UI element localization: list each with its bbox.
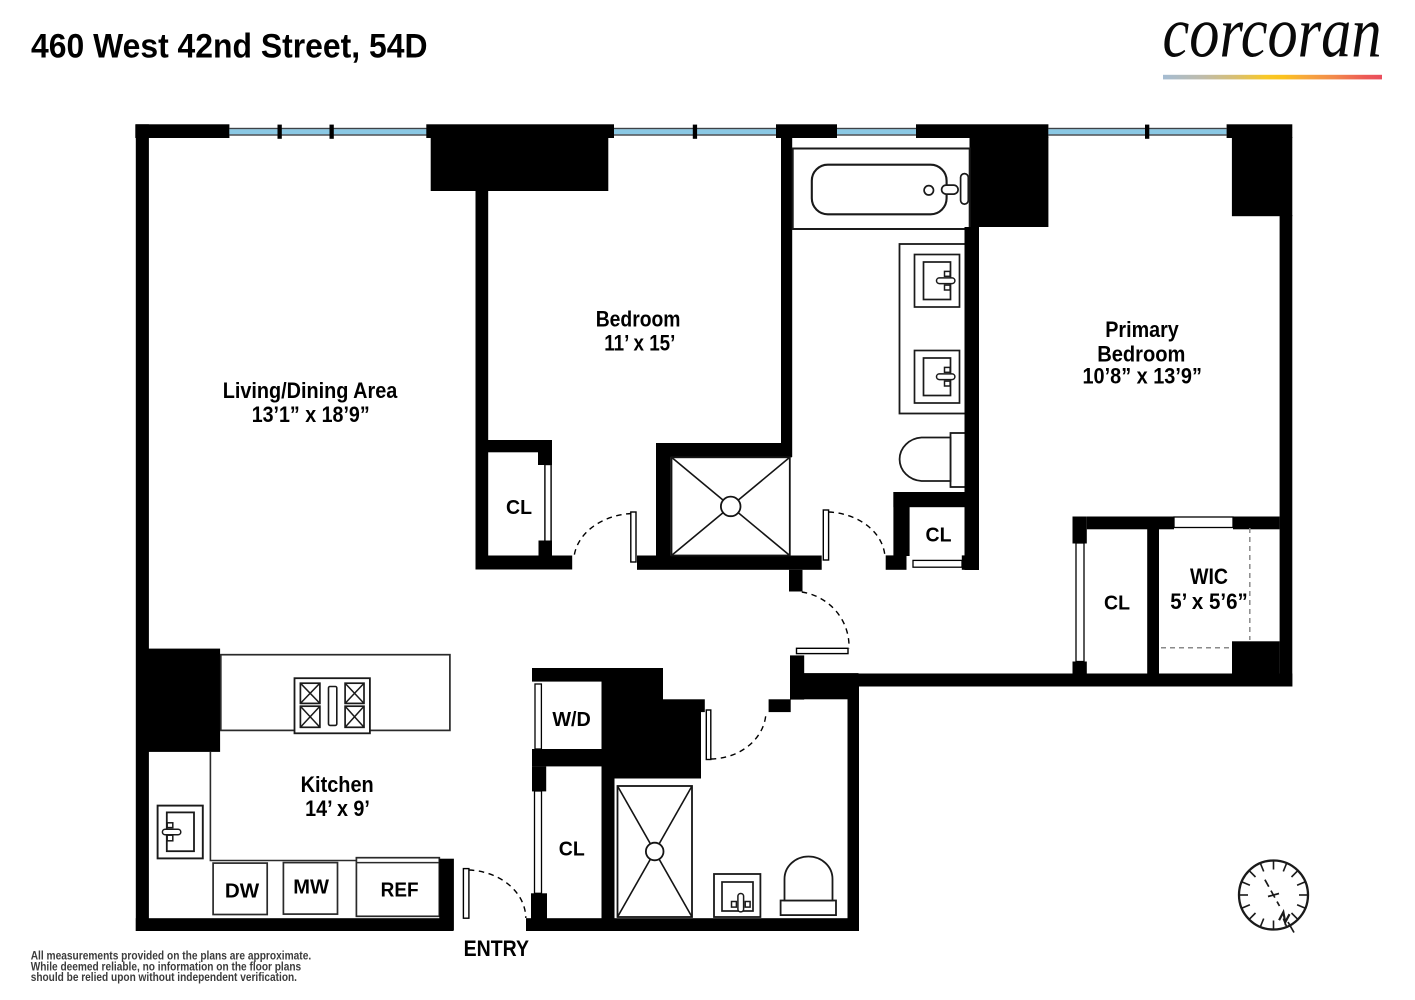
svg-text:WIC: WIC — [1190, 564, 1228, 589]
svg-text:CL: CL — [926, 525, 952, 547]
svg-text:W/D: W/D — [552, 709, 591, 731]
svg-text:should be relied upon without: should be relied upon without independen… — [31, 971, 297, 984]
svg-text:Bedroom: Bedroom — [596, 307, 681, 332]
svg-text:MW: MW — [293, 877, 329, 899]
svg-text:CL: CL — [559, 839, 585, 861]
svg-text:Primary: Primary — [1105, 317, 1179, 342]
svg-text:corcoran: corcoran — [1163, 0, 1382, 73]
svg-text:DW: DW — [225, 880, 259, 902]
svg-text:ENTRY: ENTRY — [464, 936, 530, 961]
svg-text:5’ x 5’6”: 5’ x 5’6” — [1170, 589, 1247, 614]
svg-text:460 West 42nd Street, 54D: 460 West 42nd Street, 54D — [31, 27, 428, 65]
svg-text:11’ x 15’: 11’ x 15’ — [604, 330, 675, 355]
svg-text:10’8” x 13’9”: 10’8” x 13’9” — [1083, 364, 1202, 389]
svg-text:CL: CL — [506, 497, 532, 519]
svg-text:13’1” x 18’9”: 13’1” x 18’9” — [252, 402, 370, 427]
svg-text:CL: CL — [1104, 593, 1130, 615]
svg-text:Kitchen: Kitchen — [301, 772, 374, 797]
svg-text:14’ x 9’: 14’ x 9’ — [305, 796, 370, 821]
svg-text:REF: REF — [381, 879, 419, 901]
svg-text:Living/Dining Area: Living/Dining Area — [223, 378, 398, 403]
